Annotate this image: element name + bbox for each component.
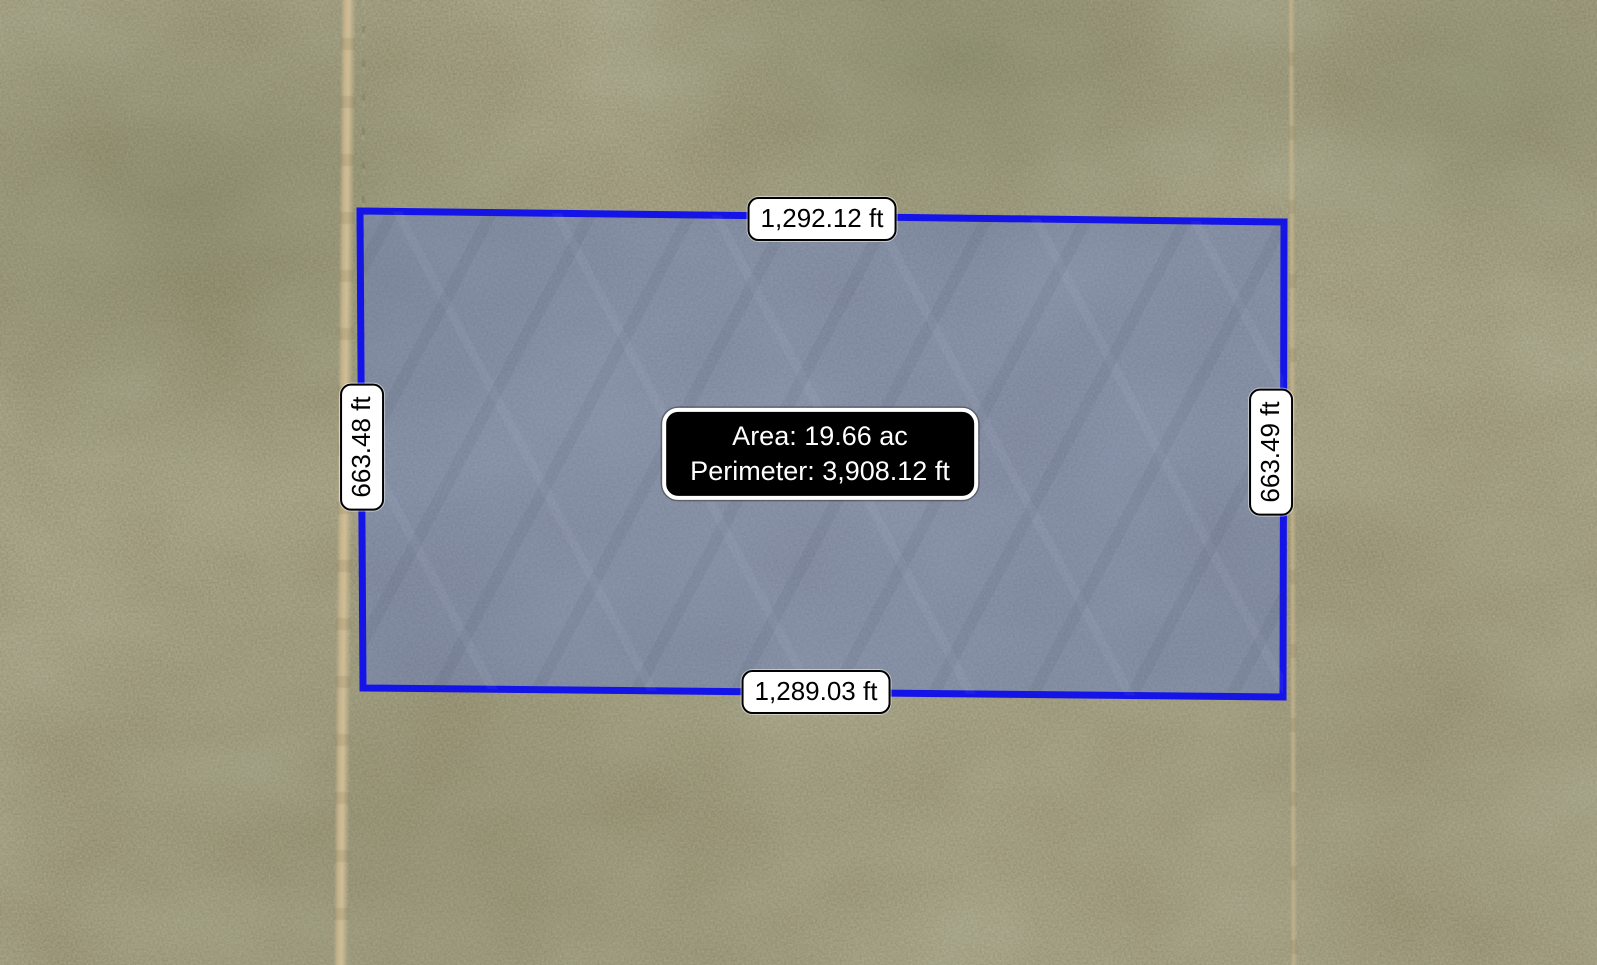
edge-length-label-right: 663.49 ft bbox=[1249, 388, 1293, 515]
area-value: Area: 19.66 ac bbox=[732, 421, 908, 451]
measurement-tooltip: Area: 19.66 ac Perimeter: 3,908.12 ft bbox=[662, 408, 978, 500]
edge-length-label-left: 663.48 ft bbox=[340, 383, 384, 510]
perimeter-value: Perimeter: 3,908.12 ft bbox=[690, 456, 950, 486]
edge-length-label-top: 1,292.12 ft bbox=[748, 197, 897, 241]
map-canvas[interactable]: 1,292.12 ft 1,289.03 ft 663.48 ft 663.49… bbox=[0, 0, 1597, 965]
edge-length-label-bottom: 1,289.03 ft bbox=[742, 670, 891, 714]
